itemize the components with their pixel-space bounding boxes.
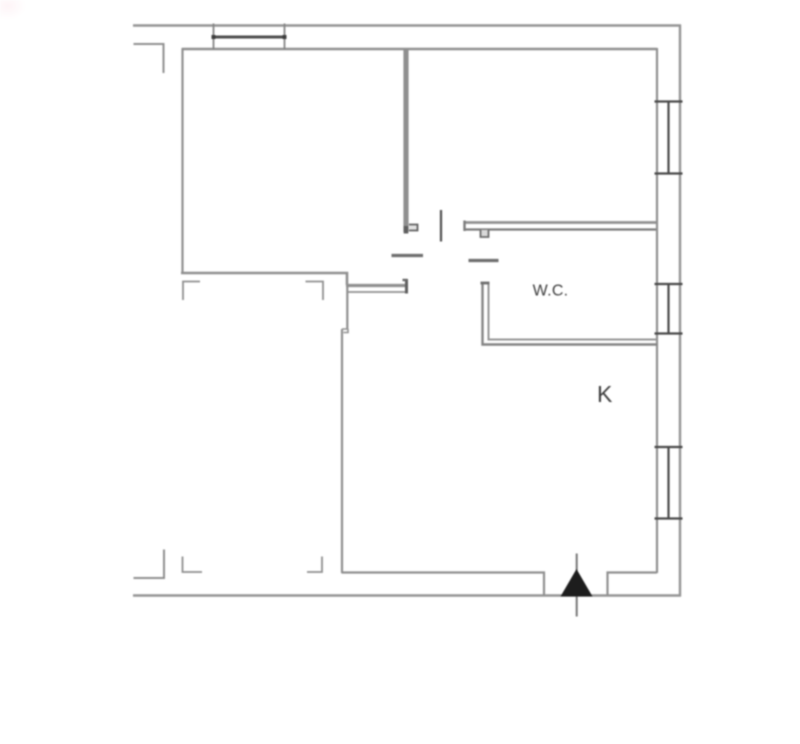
svg-text:W.C.: W.C. <box>533 283 569 300</box>
svg-text:K: K <box>597 381 613 407</box>
